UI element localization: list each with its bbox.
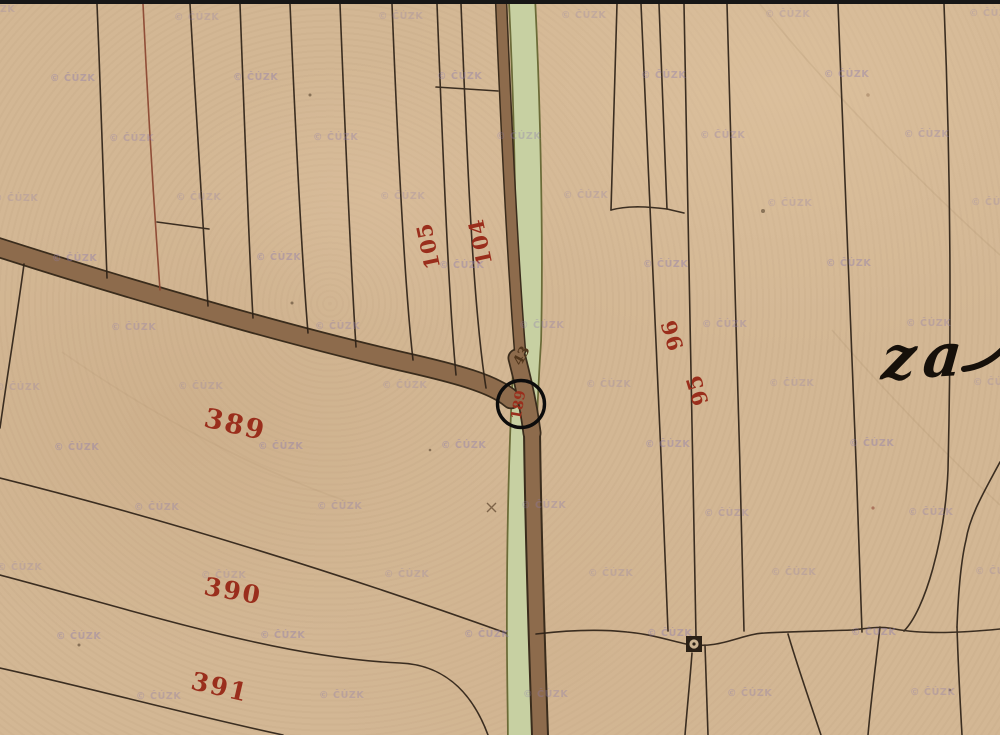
square-circle-marker-icon — [686, 636, 702, 652]
top-border — [0, 0, 1000, 4]
script-swash — [964, 350, 1000, 369]
road-fill — [0, 4, 540, 735]
place-name-label: za — [879, 320, 972, 395]
map-drawing — [0, 4, 1000, 735]
cadastral-map-viewport[interactable]: 389 390 391 105 104 96 95 43 189 za © ČÚ… — [0, 4, 1000, 735]
survey-cross-mark — [487, 503, 496, 512]
map-viewer-window: 389 390 391 105 104 96 95 43 189 za © ČÚ… — [0, 0, 1000, 735]
